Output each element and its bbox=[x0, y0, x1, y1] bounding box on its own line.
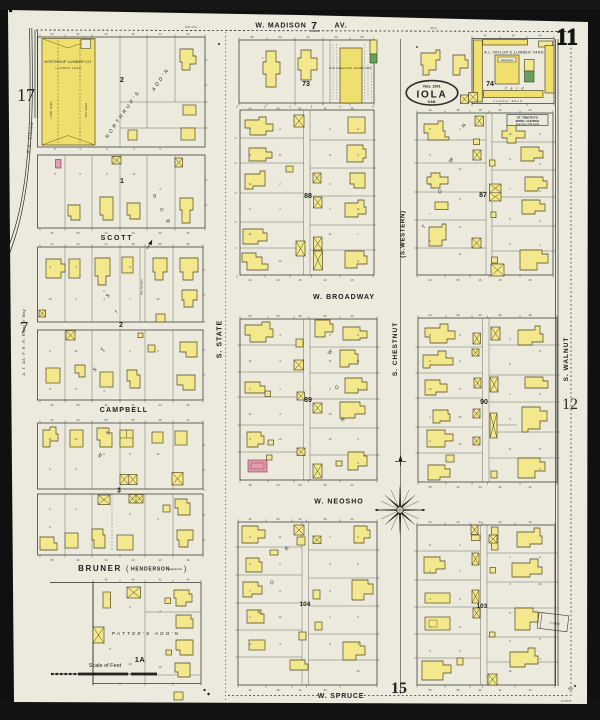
svg-text:Ch'ry: Ch'ry bbox=[430, 26, 437, 30]
svg-text:): ) bbox=[184, 566, 186, 573]
svg-text:42: 42 bbox=[478, 688, 482, 692]
svg-text:42: 42 bbox=[350, 483, 354, 487]
svg-text:44: 44 bbox=[131, 558, 135, 562]
svg-text:1: 1 bbox=[120, 178, 124, 185]
svg-text:11: 11 bbox=[249, 232, 252, 236]
svg-text:12: 12 bbox=[458, 442, 462, 446]
svg-text:Seat Cap'y 150 Lights: Seat Cap'y 150 Lights bbox=[516, 123, 540, 126]
svg-text:40: 40 bbox=[456, 485, 460, 489]
svg-text:73: 73 bbox=[302, 81, 310, 88]
svg-text:7: 7 bbox=[20, 318, 29, 337]
svg-text:44: 44 bbox=[478, 520, 482, 524]
svg-text:48: 48 bbox=[478, 313, 482, 317]
svg-text:40: 40 bbox=[298, 517, 302, 521]
svg-text:46: 46 bbox=[76, 558, 80, 562]
svg-text:46: 46 bbox=[50, 403, 54, 407]
svg-text:48: 48 bbox=[298, 314, 302, 318]
svg-text:11: 11 bbox=[329, 359, 332, 363]
svg-text:12: 12 bbox=[562, 396, 578, 413]
svg-text:42: 42 bbox=[76, 32, 80, 36]
svg-text:50: 50 bbox=[276, 517, 280, 521]
svg-text:10: 10 bbox=[508, 132, 512, 136]
svg-text:50: 50 bbox=[360, 35, 364, 39]
svg-text:15: 15 bbox=[391, 680, 407, 697]
svg-text:40: 40 bbox=[528, 485, 532, 489]
svg-text:7: 7 bbox=[311, 20, 317, 32]
svg-text:48: 48 bbox=[498, 313, 502, 317]
svg-text:11: 11 bbox=[329, 232, 332, 236]
svg-text:12: 12 bbox=[248, 412, 252, 416]
svg-text:50: 50 bbox=[323, 517, 327, 521]
svg-text:40: 40 bbox=[131, 403, 135, 407]
svg-text:17: 17 bbox=[17, 85, 35, 105]
svg-text:42: 42 bbox=[104, 403, 108, 407]
svg-text:LUMBER SHED: LUMBER SHED bbox=[55, 66, 81, 70]
svg-text:11: 11 bbox=[459, 252, 462, 256]
svg-text:40: 40 bbox=[276, 278, 280, 282]
svg-text:44: 44 bbox=[428, 520, 432, 524]
svg-text:2: 2 bbox=[119, 322, 123, 329]
svg-text:BRUNER: BRUNER bbox=[78, 564, 122, 573]
svg-text:48: 48 bbox=[250, 35, 254, 39]
svg-text:48: 48 bbox=[131, 242, 135, 246]
svg-text:50: 50 bbox=[50, 32, 54, 36]
svg-text:11: 11 bbox=[249, 182, 252, 186]
svg-text:87: 87 bbox=[479, 192, 487, 199]
svg-text:50: 50 bbox=[323, 688, 327, 692]
svg-text:40: 40 bbox=[158, 231, 162, 235]
svg-text:40: 40 bbox=[158, 558, 162, 562]
svg-text:42: 42 bbox=[248, 688, 252, 692]
svg-text:S. STATE: S. STATE bbox=[217, 320, 224, 358]
svg-text:44: 44 bbox=[158, 32, 162, 36]
svg-text:46: 46 bbox=[50, 418, 54, 422]
svg-text:42: 42 bbox=[350, 517, 354, 521]
svg-text:11: 11 bbox=[357, 359, 360, 363]
svg-text:40: 40 bbox=[428, 108, 432, 112]
svg-text:44: 44 bbox=[50, 242, 54, 246]
svg-text:10: 10 bbox=[356, 669, 360, 673]
svg-text:44: 44 bbox=[104, 242, 108, 246]
svg-text:44: 44 bbox=[276, 483, 280, 487]
svg-text:40: 40 bbox=[278, 35, 282, 39]
svg-text:44: 44 bbox=[76, 242, 80, 246]
svg-text:48: 48 bbox=[478, 108, 482, 112]
svg-text:HENDERSON: HENDERSON bbox=[131, 566, 170, 572]
svg-text:Lumber Shed: Lumber Shed bbox=[493, 99, 522, 103]
svg-text:NORTHRUP LUMBER CO.: NORTHRUP LUMBER CO. bbox=[45, 60, 93, 64]
svg-text:48: 48 bbox=[528, 313, 532, 317]
svg-text:12: 12 bbox=[74, 349, 78, 353]
svg-text:42: 42 bbox=[498, 688, 502, 692]
svg-text:50: 50 bbox=[456, 313, 460, 317]
svg-text:A.L.TAYLOR'S LUMBER YARD: A.L.TAYLOR'S LUMBER YARD bbox=[483, 51, 544, 55]
svg-text:46: 46 bbox=[186, 403, 190, 407]
svg-text:89: 89 bbox=[304, 397, 312, 404]
svg-text:48: 48 bbox=[456, 108, 460, 112]
svg-text:S. CHESTNUT: S. CHESTNUT bbox=[392, 322, 399, 376]
svg-text:48: 48 bbox=[498, 485, 502, 489]
svg-text:50: 50 bbox=[104, 418, 108, 422]
svg-text:48: 48 bbox=[276, 688, 280, 692]
svg-text:10: 10 bbox=[458, 415, 462, 419]
svg-text:40: 40 bbox=[528, 108, 532, 112]
svg-text:42: 42 bbox=[248, 278, 252, 282]
svg-text:44: 44 bbox=[298, 688, 302, 692]
svg-text:10: 10 bbox=[74, 437, 78, 441]
svg-text:74: 74 bbox=[486, 81, 494, 88]
svg-text:Scale of Feet: Scale of Feet bbox=[89, 663, 122, 669]
svg-text:3: 3 bbox=[117, 488, 121, 495]
svg-text:46: 46 bbox=[131, 32, 135, 36]
svg-text:42: 42 bbox=[186, 418, 190, 422]
svg-text:10: 10 bbox=[428, 387, 432, 391]
svg-text:40: 40 bbox=[498, 108, 502, 112]
svg-text:40: 40 bbox=[131, 578, 135, 582]
svg-text:44: 44 bbox=[276, 107, 280, 111]
svg-text:11: 11 bbox=[133, 172, 136, 176]
svg-text:48: 48 bbox=[350, 107, 354, 111]
svg-text:40: 40 bbox=[186, 32, 190, 36]
svg-text:PATTEE'S ADD'N: PATTEE'S ADD'N bbox=[112, 631, 181, 637]
svg-text:10: 10 bbox=[328, 412, 332, 416]
svg-text:46: 46 bbox=[478, 278, 482, 282]
svg-text:50: 50 bbox=[76, 231, 80, 235]
svg-text:9½: 9½ bbox=[568, 687, 573, 691]
svg-text:104: 104 bbox=[300, 601, 311, 608]
svg-text:12: 12 bbox=[356, 207, 360, 211]
svg-text:55: 55 bbox=[50, 558, 54, 562]
svg-text:A.T.P.Tr: A.T.P.Tr bbox=[560, 699, 572, 703]
svg-text:10: 10 bbox=[158, 665, 162, 669]
svg-text:40: 40 bbox=[334, 35, 338, 39]
svg-text:103: 103 bbox=[477, 603, 488, 610]
svg-text:46: 46 bbox=[186, 578, 190, 582]
svg-text:AV.: AV. bbox=[335, 23, 348, 30]
svg-text:Apartment: Apartment bbox=[168, 567, 182, 571]
svg-text:46: 46 bbox=[186, 231, 190, 235]
svg-text:W. MADISON: W. MADISON bbox=[255, 23, 306, 30]
svg-text:40: 40 bbox=[104, 32, 108, 36]
svg-text:12: 12 bbox=[248, 359, 252, 363]
svg-text:10: 10 bbox=[128, 662, 132, 666]
svg-text:40: 40 bbox=[498, 278, 502, 282]
svg-text:10: 10 bbox=[538, 582, 542, 586]
svg-text:12: 12 bbox=[48, 437, 52, 441]
svg-text:Yard: Yard bbox=[505, 87, 528, 91]
svg-text:2: 2 bbox=[120, 77, 124, 84]
svg-text:Bar Garden: Bar Garden bbox=[140, 279, 144, 295]
svg-text:46: 46 bbox=[323, 107, 327, 111]
svg-text:10: 10 bbox=[278, 437, 282, 441]
svg-text:12: 12 bbox=[156, 452, 160, 456]
svg-text:W. NEOSHO: W. NEOSHO bbox=[314, 499, 363, 506]
svg-text:12: 12 bbox=[278, 259, 282, 263]
svg-text:48: 48 bbox=[528, 278, 532, 282]
svg-text:10: 10 bbox=[508, 669, 512, 673]
svg-text:12: 12 bbox=[278, 615, 282, 619]
svg-text:W. BROADWAY: W. BROADWAY bbox=[313, 294, 375, 301]
svg-text:50: 50 bbox=[131, 418, 135, 422]
svg-text:48: 48 bbox=[350, 278, 354, 282]
svg-text:40: 40 bbox=[76, 418, 80, 422]
svg-text:55: 55 bbox=[456, 278, 460, 282]
svg-text:40: 40 bbox=[478, 485, 482, 489]
svg-text:1A: 1A bbox=[135, 655, 146, 664]
svg-text:46: 46 bbox=[298, 278, 302, 282]
svg-text:48: 48 bbox=[428, 485, 432, 489]
svg-text:50: 50 bbox=[276, 314, 280, 318]
svg-text:(S.WESTERN): (S.WESTERN) bbox=[401, 210, 407, 257]
svg-text:44: 44 bbox=[323, 278, 327, 282]
svg-text:44: 44 bbox=[131, 231, 135, 235]
svg-text:50: 50 bbox=[76, 403, 80, 407]
svg-text:LUMB. SHED: LUMB. SHED bbox=[49, 101, 53, 118]
svg-text:40: 40 bbox=[538, 34, 542, 38]
svg-text:40: 40 bbox=[428, 278, 432, 282]
svg-text:11: 11 bbox=[279, 535, 282, 539]
svg-text:50: 50 bbox=[428, 688, 432, 692]
svg-text:40: 40 bbox=[456, 520, 460, 524]
svg-text:44: 44 bbox=[104, 558, 108, 562]
svg-text:SCOTT: SCOTT bbox=[101, 235, 134, 242]
svg-text:44: 44 bbox=[483, 34, 487, 38]
svg-text:G.M. Carter & Co. Lumber Yard: G.M. Carter & Co. Lumber Yard bbox=[329, 66, 371, 70]
svg-text:90: 90 bbox=[480, 399, 488, 406]
svg-text:50: 50 bbox=[298, 483, 302, 487]
svg-text:CAMPBELL: CAMPBELL bbox=[100, 407, 149, 414]
svg-text:42: 42 bbox=[104, 578, 108, 582]
svg-text:10: 10 bbox=[48, 297, 52, 301]
svg-text:40: 40 bbox=[511, 34, 515, 38]
svg-text:46: 46 bbox=[50, 231, 54, 235]
svg-text:44: 44 bbox=[104, 231, 108, 235]
svg-text:11: 11 bbox=[279, 153, 282, 157]
svg-text:46: 46 bbox=[248, 517, 252, 521]
svg-text:MILL SHED: MILL SHED bbox=[84, 103, 88, 118]
svg-text:44: 44 bbox=[158, 403, 162, 407]
svg-text:55: 55 bbox=[456, 688, 460, 692]
svg-text:88: 88 bbox=[304, 193, 312, 200]
svg-text:48: 48 bbox=[158, 418, 162, 422]
svg-text:42: 42 bbox=[158, 578, 162, 582]
svg-text:W. SPRUCE: W. SPRUCE bbox=[318, 693, 364, 700]
svg-text:40: 40 bbox=[248, 107, 252, 111]
svg-text:44: 44 bbox=[428, 313, 432, 317]
svg-text:50: 50 bbox=[248, 314, 252, 318]
svg-text:12: 12 bbox=[458, 167, 462, 171]
svg-text:48: 48 bbox=[248, 483, 252, 487]
svg-text:10: 10 bbox=[328, 437, 332, 441]
svg-text:S. WALNUT: S. WALNUT bbox=[563, 337, 570, 382]
svg-text:46: 46 bbox=[186, 558, 190, 562]
svg-text:12: 12 bbox=[156, 297, 160, 301]
svg-text:40: 40 bbox=[350, 314, 354, 318]
svg-text:Nov. 1901: Nov. 1901 bbox=[423, 85, 440, 89]
svg-text:46: 46 bbox=[528, 520, 532, 524]
svg-text:F.M. Ch's: F.M. Ch's bbox=[185, 25, 198, 29]
svg-text:48: 48 bbox=[186, 242, 190, 246]
svg-text:44: 44 bbox=[528, 688, 532, 692]
svg-text:40: 40 bbox=[306, 35, 310, 39]
svg-text:50: 50 bbox=[298, 107, 302, 111]
svg-text:KAN.: KAN. bbox=[428, 100, 437, 104]
svg-text:55: 55 bbox=[323, 483, 327, 487]
svg-text:11: 11 bbox=[509, 447, 512, 451]
svg-text:Carpenter: Carpenter bbox=[501, 58, 514, 62]
svg-text:55: 55 bbox=[323, 314, 327, 318]
svg-text:12: 12 bbox=[248, 642, 252, 646]
svg-text:44: 44 bbox=[498, 520, 502, 524]
svg-text:55: 55 bbox=[158, 242, 162, 246]
svg-text:11: 11 bbox=[556, 25, 578, 50]
